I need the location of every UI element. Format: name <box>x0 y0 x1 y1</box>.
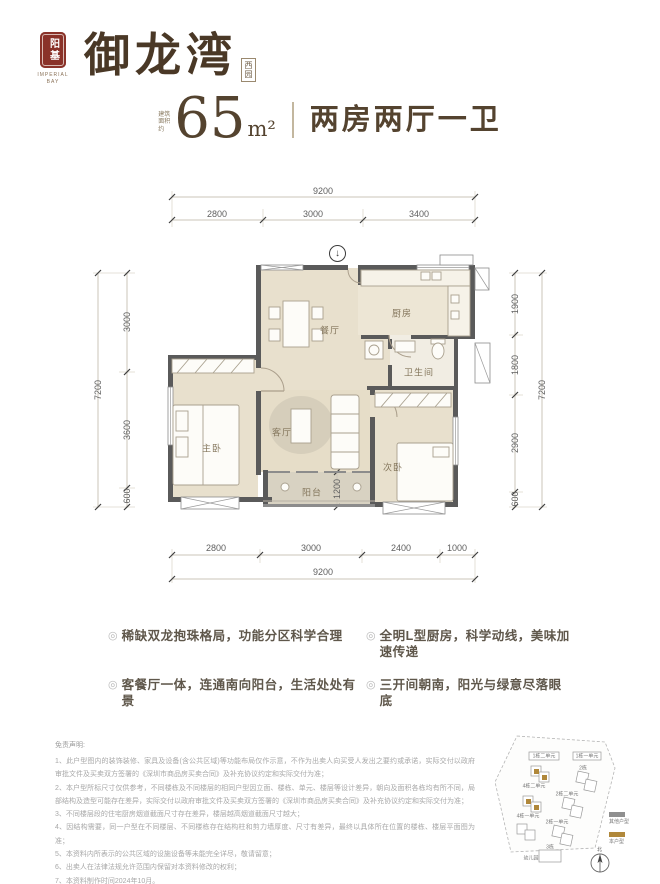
entry-arrow-icon: ↓ <box>329 245 346 262</box>
disclaimer-title: 免责声明: <box>55 740 475 750</box>
compass-icon <box>591 854 609 872</box>
feature-text: 三开间朝南，阳光与绿意尽落眼底 <box>380 677 570 710</box>
legend-label: 其他户型 <box>609 818 645 825</box>
ring-bullet-icon: ◎ <box>366 629 376 642</box>
dim-bottom-seg-0: 2800 <box>204 543 228 553</box>
siteplan-label: 4栋二单元 <box>523 783 546 790</box>
disclaimer-item: 7、本资料制作时间2024年10月。 <box>55 875 475 884</box>
area-unit: m² <box>247 117 275 141</box>
siteplan-label: 2栋 <box>579 765 587 772</box>
room-label-dining: 餐厅 <box>320 324 340 337</box>
dim-top-seg-1: 3000 <box>301 209 325 219</box>
legend-swatch-current <box>609 832 625 837</box>
feature-list: ◎ 稀缺双龙抱珠格局，功能分区科学合理 ◎ 全明L型厨房，科学动线，美味加速传递… <box>108 628 570 709</box>
disclaimer-item: 3、不同楼层段的住宅厨房烟道截面尺寸存在差异，楼层越高烟道截面尺寸越大； <box>55 808 475 821</box>
dim-left-seg-1: 3600 <box>122 418 132 442</box>
disclaimer-item: 2、本户型所标尺寸仅供参考，不同楼栋及不同楼层的相同户型因立面、楼栋、单元、楼层… <box>55 782 475 809</box>
disclaimer-item: 5、本资料内所表示的公共区域的设施设备等未能完全详尽，敬请留意； <box>55 848 475 861</box>
dim-top-seg-0: 2800 <box>205 209 229 219</box>
unit-header: 建筑面积约 65 m² 两房两厅一卫 <box>0 94 660 144</box>
dim-left-overall: 7200 <box>93 378 103 402</box>
dim-right-overall: 7200 <box>537 378 547 402</box>
room-label-living: 客厅 <box>272 426 292 439</box>
room-label-balcony: 阳台 <box>302 486 322 499</box>
brand-logo: 阳基 IMPERIAL BAY 御龙湾 西园 <box>30 24 256 86</box>
siteplan: 1栋二单元 1栋一单元 2栋 4栋二单元 2栋二单元 4栋一单元 2栋一单元 3… <box>487 730 647 882</box>
feature-item: ◎ 三开间朝南，阳光与绿意尽落眼底 <box>366 677 570 710</box>
feature-item: ◎ 全明L型厨房，科学动线，美味加速传递 <box>366 628 570 661</box>
ring-bullet-icon: ◎ <box>108 629 118 642</box>
seal-text: 阳基 <box>46 38 61 62</box>
legend-item: 其他户型 <box>609 812 645 825</box>
dim-top-overall: 9200 <box>311 186 335 196</box>
room-label-second: 次卧 <box>383 461 403 474</box>
disclaimer-item: 4、因结构需要，同一户型在不同楼层、不同楼栋存在结构柱和剪力墙厚度、尺寸有差异，… <box>55 821 475 848</box>
brand-name: 御龙湾 <box>84 24 237 86</box>
dim-right-seg-1: 1800 <box>510 353 520 377</box>
dim-right-seg-2: 2900 <box>510 431 520 455</box>
room-label-kitchen: 厨房 <box>392 307 412 320</box>
floorplan-drawing <box>85 165 565 595</box>
layout-title: 两房两厅一卫 <box>310 96 502 138</box>
dim-balcony-depth: 1200 <box>332 477 342 501</box>
dim-right-seg-0: 1900 <box>510 292 520 316</box>
floorplan: ↓ 餐厅 厨房 卫生间 主卧 客厅 次卧 阳台 9200 2800 3000 3… <box>85 165 565 595</box>
disclaimer-item: 1、此户型图内的装饰装修、家具及设备(含公共区域)等功能布局仅作示意，不作为出卖… <box>55 755 475 782</box>
dim-bottom-overall: 9200 <box>311 567 335 577</box>
area-prefix-label: 建筑面积约 <box>158 112 171 135</box>
siteplan-label: 1栋二单元 <box>533 753 556 760</box>
legend-swatch-other <box>609 812 625 817</box>
room-label-master: 主卧 <box>202 442 222 455</box>
brand-subname: 西园 <box>241 58 256 82</box>
dim-left-seg-0: 3000 <box>122 310 132 334</box>
feature-text: 客餐厅一体，连通南向阳台，生活处处有景 <box>122 677 366 710</box>
dim-top-seg-2: 3400 <box>407 209 431 219</box>
feature-item: ◎ 稀缺双龙抱珠格局，功能分区科学合理 <box>108 628 366 661</box>
siteplan-drawing <box>487 730 647 882</box>
dim-bottom-seg-2: 2400 <box>389 543 413 553</box>
feature-text: 全明L型厨房，科学动线，美味加速传递 <box>380 628 570 661</box>
siteplan-label: 2栋二单元 <box>556 791 579 798</box>
area-value: 65 <box>174 94 245 144</box>
legend-item: 本户型 <box>609 832 645 845</box>
dim-right-seg-3: 600 <box>510 489 520 508</box>
brand-seal-block: 阳基 IMPERIAL BAY <box>30 32 76 86</box>
ring-bullet-icon: ◎ <box>366 678 376 691</box>
header-divider <box>292 102 294 138</box>
room-label-bath: 卫生间 <box>404 366 434 379</box>
siteplan-label: 1栋一单元 <box>576 753 599 760</box>
siteplan-label: 幼儿园 <box>523 855 538 862</box>
dim-left-seg-2: 600 <box>122 486 132 505</box>
ring-bullet-icon: ◎ <box>108 678 118 691</box>
compass-label: 北 <box>597 846 602 853</box>
disclaimer-item: 6、出卖人在法律法规允许范围内保留对本资料修改的权利； <box>55 861 475 874</box>
brand-caption: IMPERIAL BAY <box>30 72 76 86</box>
disclaimer: 免责声明: 1、此户型图内的装饰装修、家具及设备(含公共区域)等功能布局仅作示意… <box>55 740 475 884</box>
legend-label: 本户型 <box>609 838 645 845</box>
entry-arrow-glyph: ↓ <box>335 249 340 259</box>
siteplan-label: 4栋一单元 <box>517 813 540 820</box>
flyer-page: 阳基 IMPERIAL BAY 御龙湾 西园 建筑面积约 65 m² 两房两厅一… <box>0 0 660 884</box>
siteplan-label: 2栋一单元 <box>546 819 569 826</box>
seal-icon: 阳基 <box>40 32 66 68</box>
feature-text: 稀缺双龙抱珠格局，功能分区科学合理 <box>122 628 343 644</box>
feature-item: ◎ 客餐厅一体，连通南向阳台，生活处处有景 <box>108 677 366 710</box>
siteplan-label: 3栋 <box>546 844 554 851</box>
siteplan-legend: 其他户型 本户型 <box>609 812 645 852</box>
dim-bottom-seg-3: 1000 <box>445 543 469 553</box>
dim-bottom-seg-1: 3000 <box>299 543 323 553</box>
